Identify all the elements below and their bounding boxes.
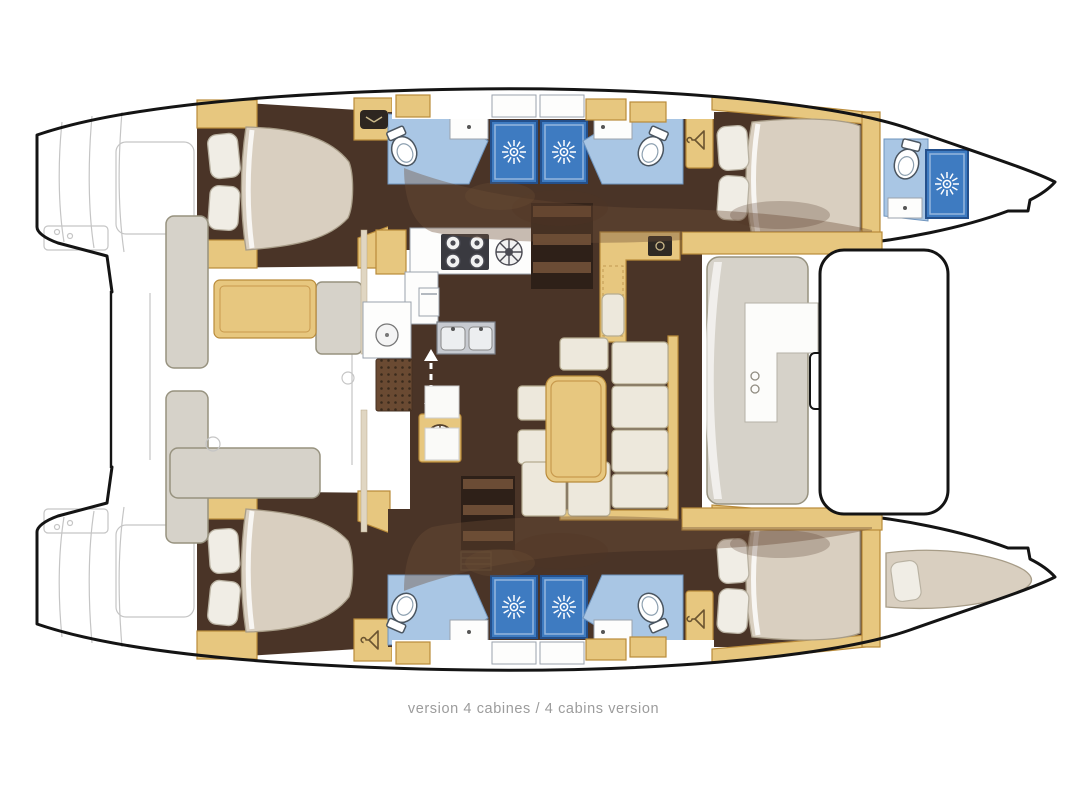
saloon bbox=[361, 202, 702, 570]
cockpit-side-seat bbox=[316, 282, 362, 354]
cockpit-sunbed bbox=[170, 448, 320, 498]
saloon-table bbox=[546, 376, 606, 482]
floorplan-drawing bbox=[0, 0, 1067, 800]
forward-seat bbox=[705, 257, 818, 504]
cabinet bbox=[425, 386, 459, 418]
cabinet bbox=[425, 428, 459, 460]
nav-seat bbox=[602, 294, 624, 336]
oven bbox=[419, 288, 439, 316]
double-sink bbox=[437, 322, 495, 354]
plan-caption: version 4 cabines / 4 cabins version bbox=[0, 701, 1067, 717]
aft-galley-counter bbox=[363, 302, 411, 358]
cockpit-bench bbox=[214, 280, 316, 338]
aft-wall bbox=[361, 410, 367, 532]
foredeck-platform bbox=[810, 250, 948, 514]
catamaran-floorplan: version 4 cabines / 4 cabins version bbox=[0, 0, 1067, 800]
bow-bathroom bbox=[884, 138, 968, 221]
cockpit-side-locker bbox=[166, 216, 208, 368]
tv-vent-icon bbox=[360, 110, 388, 129]
